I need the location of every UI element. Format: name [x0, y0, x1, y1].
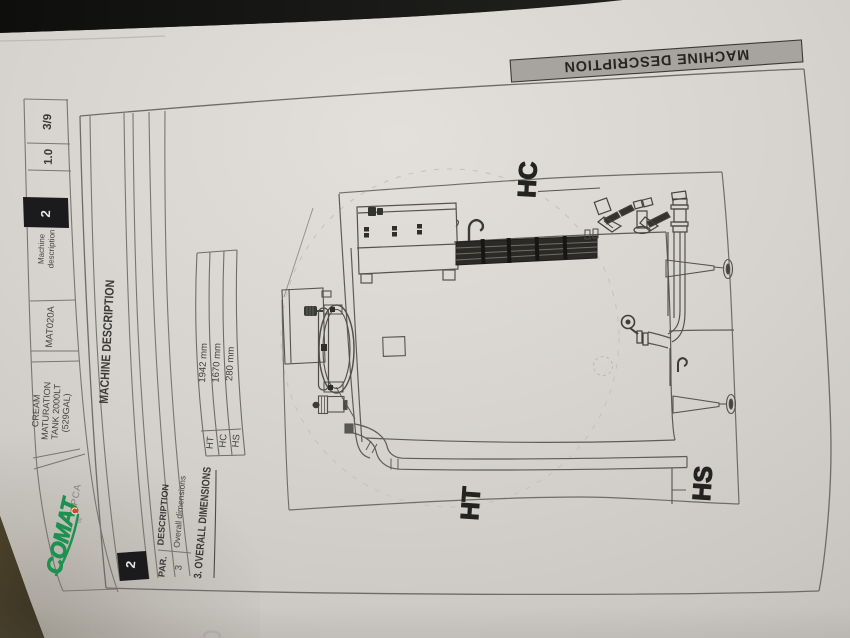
svg-text:2: 2 — [123, 560, 139, 569]
svg-text:HS: HS — [688, 465, 718, 502]
svg-text:(529GAL): (529GAL) — [60, 393, 72, 433]
svg-text:3: 3 — [173, 565, 184, 571]
svg-text:1670 mm: 1670 mm — [210, 343, 223, 383]
svg-text:280 mm: 280 mm — [224, 346, 237, 381]
svg-text:2: 2 — [38, 210, 53, 218]
svg-text:HC: HC — [513, 161, 543, 199]
svg-text:Machine: Machine — [36, 233, 46, 264]
svg-text:HS: HS — [230, 434, 242, 448]
svg-text:HT: HT — [456, 486, 486, 521]
svg-text:description: description — [46, 229, 56, 268]
svg-text:MAT020A: MAT020A — [44, 305, 57, 348]
svg-text:1942 mm: 1942 mm — [197, 343, 210, 383]
svg-text:3/9: 3/9 — [42, 114, 55, 130]
svg-text:1.0: 1.0 — [43, 149, 56, 165]
svg-text:HC: HC — [217, 433, 229, 448]
svg-text:HT: HT — [204, 436, 216, 450]
